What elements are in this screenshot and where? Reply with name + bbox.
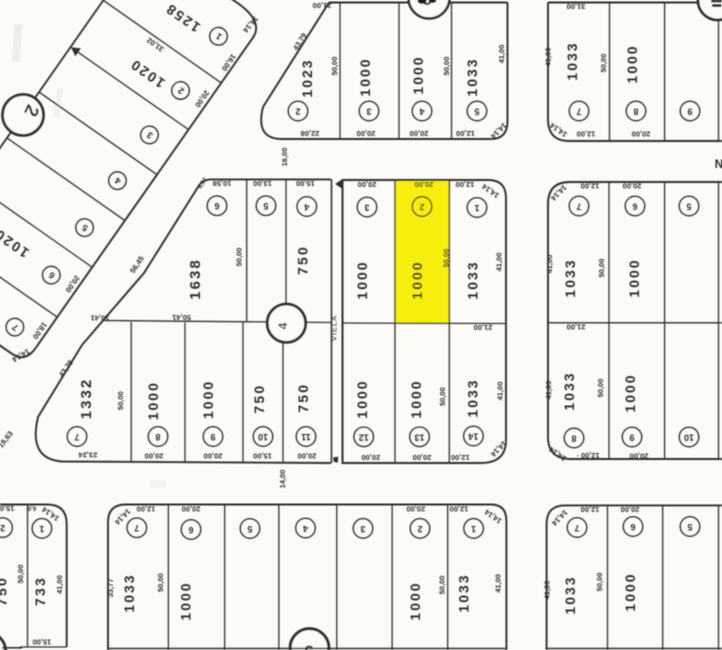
svg-text:41,00: 41,00	[494, 574, 503, 593]
svg-text:12,00: 12,00	[581, 182, 600, 191]
svg-text:41,00: 41,00	[495, 253, 504, 272]
svg-text:33,77: 33,77	[106, 579, 115, 598]
svg-text:10,58: 10,58	[213, 179, 232, 188]
svg-text:20,00: 20,00	[621, 505, 640, 514]
svg-text:50,00: 50,00	[235, 248, 244, 267]
svg-text:1000: 1000	[622, 572, 638, 611]
svg-text:4: 4	[419, 107, 424, 117]
svg-text:12,00: 12,00	[456, 180, 475, 189]
svg-text:20,00: 20,00	[361, 453, 380, 462]
svg-text:20,00: 20,00	[415, 180, 434, 189]
svg-text:6: 6	[632, 202, 637, 212]
svg-text:1332: 1332	[78, 378, 95, 419]
svg-text:12,00: 12,00	[581, 505, 600, 514]
svg-text:3: 3	[366, 107, 371, 117]
svg-text:1000: 1000	[178, 581, 194, 620]
svg-text:750: 750	[251, 384, 267, 414]
svg-text:15,00: 15,00	[0, 504, 14, 513]
svg-text:50,00: 50,00	[156, 573, 165, 592]
svg-text:4: 4	[303, 524, 308, 534]
svg-text:20,00: 20,00	[298, 451, 317, 460]
svg-text:50,00: 50,00	[116, 391, 125, 410]
svg-text:1033: 1033	[464, 57, 480, 96]
svg-text:12: 12	[359, 432, 369, 442]
svg-text:1: 1	[471, 524, 476, 534]
svg-text:1000: 1000	[407, 581, 423, 620]
svg-text:1: 1	[474, 203, 479, 213]
svg-text:23,24: 23,24	[78, 450, 98, 459]
svg-text:2: 2	[417, 524, 422, 534]
svg-text:1033: 1033	[455, 573, 471, 612]
svg-text:21,00: 21,00	[474, 323, 493, 332]
svg-text:41,00: 41,00	[544, 381, 553, 400]
svg-text:1000: 1000	[410, 55, 426, 94]
svg-text:16,00: 16,00	[280, 148, 289, 167]
svg-text:11: 11	[301, 432, 311, 442]
svg-text:8: 8	[155, 432, 160, 442]
svg-text:1000: 1000	[409, 260, 425, 299]
svg-text:1000: 1000	[354, 260, 370, 299]
svg-text:12,00: 12,00	[450, 504, 469, 513]
svg-text:13: 13	[414, 432, 424, 442]
svg-text:12,00: 12,00	[451, 453, 470, 462]
svg-text:41,00: 41,00	[497, 45, 506, 64]
svg-text:10: 10	[258, 432, 268, 442]
svg-text:20,00: 20,00	[358, 180, 377, 189]
svg-text:1000: 1000	[145, 381, 161, 420]
svg-text:50,00: 50,00	[438, 576, 447, 595]
svg-text:50,00: 50,00	[442, 57, 451, 76]
svg-text:15,00: 15,00	[296, 179, 315, 188]
svg-text:7: 7	[74, 432, 79, 442]
svg-text:1000: 1000	[357, 57, 373, 96]
svg-text:9: 9	[629, 433, 634, 443]
svg-text:1000: 1000	[200, 380, 216, 419]
svg-text:6: 6	[214, 201, 219, 211]
svg-text:10,41: 10,41	[91, 314, 110, 323]
svg-text:1000: 1000	[354, 379, 370, 418]
svg-text:5: 5	[687, 522, 692, 532]
svg-text:12,00: 12,00	[577, 129, 596, 138]
svg-text:1033: 1033	[561, 371, 577, 410]
svg-text:12,00 ·: 12,00 ·	[576, 451, 599, 460]
svg-text:5: 5	[263, 201, 268, 211]
svg-text:1033: 1033	[562, 575, 578, 614]
svg-text:41,00: 41,00	[55, 575, 64, 594]
svg-text:1: 1	[39, 524, 44, 534]
svg-text:6,0: 6,0	[27, 505, 36, 511]
svg-text:12,00: 12,00	[137, 504, 156, 513]
svg-text:VIELA: VIELA	[330, 315, 339, 341]
svg-text:41,00: 41,00	[545, 255, 554, 274]
svg-text:10: 10	[684, 433, 694, 443]
svg-text:7: 7	[576, 107, 581, 117]
svg-text:1000: 1000	[408, 379, 424, 418]
svg-text:750: 750	[295, 383, 311, 413]
svg-text:750: 750	[295, 245, 311, 275]
svg-text:6: 6	[188, 525, 193, 535]
svg-text:50,00: 50,00	[16, 565, 25, 584]
svg-text:9: 9	[210, 432, 215, 442]
svg-text:50,00: 50,00	[596, 379, 605, 398]
svg-text:6: 6	[630, 522, 635, 532]
svg-text:15,00: 15,00	[253, 452, 272, 461]
svg-text:41,00: 41,00	[495, 382, 504, 401]
svg-text:3: 3	[364, 203, 369, 213]
svg-text:20,00: 20,00	[145, 451, 164, 460]
svg-text:5: 5	[247, 524, 252, 534]
svg-text:20,00: 20,00	[182, 505, 201, 514]
svg-text:8: 8	[633, 107, 638, 117]
svg-text:20,00: 20,00	[413, 453, 432, 462]
svg-text:1000: 1000	[624, 44, 640, 83]
svg-text:20,00: 20,00	[357, 129, 376, 138]
svg-text:20,00: 20,00	[623, 182, 642, 191]
svg-text:15,00: 15,00	[33, 638, 52, 647]
svg-text:22,08: 22,08	[301, 129, 320, 138]
svg-text:750: 750	[0, 576, 10, 606]
svg-text:9: 9	[687, 107, 692, 117]
svg-text:20,00: 20,00	[630, 451, 649, 460]
svg-text:1033: 1033	[465, 260, 481, 299]
svg-text:14: 14	[468, 432, 478, 442]
svg-text:7: 7	[576, 202, 581, 212]
svg-text:4: 4	[276, 322, 290, 329]
svg-text:20,00: 20,00	[410, 129, 429, 138]
svg-text:41,00: 41,00	[543, 581, 552, 600]
svg-text:733: 733	[32, 576, 48, 606]
svg-text:4: 4	[304, 202, 309, 212]
svg-text:1000: 1000	[622, 373, 638, 412]
svg-text:21,00: 21,00	[313, 1, 332, 10]
svg-text:14,00: 14,00	[278, 470, 287, 489]
svg-text:20,00: 20,00	[204, 451, 223, 460]
svg-text:1000: 1000	[626, 258, 642, 297]
svg-text:41,00: 41,00	[544, 48, 553, 67]
svg-text:2: 2	[295, 107, 300, 117]
svg-text:7: 7	[574, 523, 579, 533]
svg-text:5: 5	[686, 202, 691, 212]
svg-text:20,00: 20,00	[406, 505, 425, 514]
svg-text:12,00: 12,00	[456, 129, 475, 138]
svg-text:1033: 1033	[564, 41, 580, 80]
svg-text:50,00: 50,00	[442, 249, 451, 268]
svg-text:13,00: 13,00	[253, 179, 272, 188]
svg-text:31,00: 31,00	[567, 2, 586, 11]
svg-text:2: 2	[419, 202, 424, 212]
svg-text:1033: 1033	[562, 258, 578, 297]
svg-text:50,00: 50,00	[599, 54, 608, 73]
svg-text:50,00: 50,00	[595, 573, 604, 592]
svg-text:5: 5	[474, 107, 479, 117]
svg-text:1033: 1033	[464, 378, 480, 417]
svg-text:50,00: 50,00	[438, 387, 447, 406]
svg-text:50,00: 50,00	[330, 57, 339, 76]
svg-text:N: N	[715, 157, 722, 171]
svg-text:8: 8	[571, 434, 576, 444]
svg-text:3: 3	[360, 524, 365, 534]
svg-text:1023: 1023	[299, 58, 315, 97]
svg-text:2: 2	[0, 523, 5, 533]
svg-text:50,00: 50,00	[597, 259, 606, 278]
svg-text:1638: 1638	[187, 258, 204, 299]
svg-text:21,00: 21,00	[567, 323, 586, 332]
svg-text:1033: 1033	[121, 573, 137, 612]
svg-text:20,00: 20,00	[632, 129, 651, 138]
svg-text:50,41: 50,41	[172, 313, 191, 322]
svg-text:7: 7	[134, 523, 139, 533]
